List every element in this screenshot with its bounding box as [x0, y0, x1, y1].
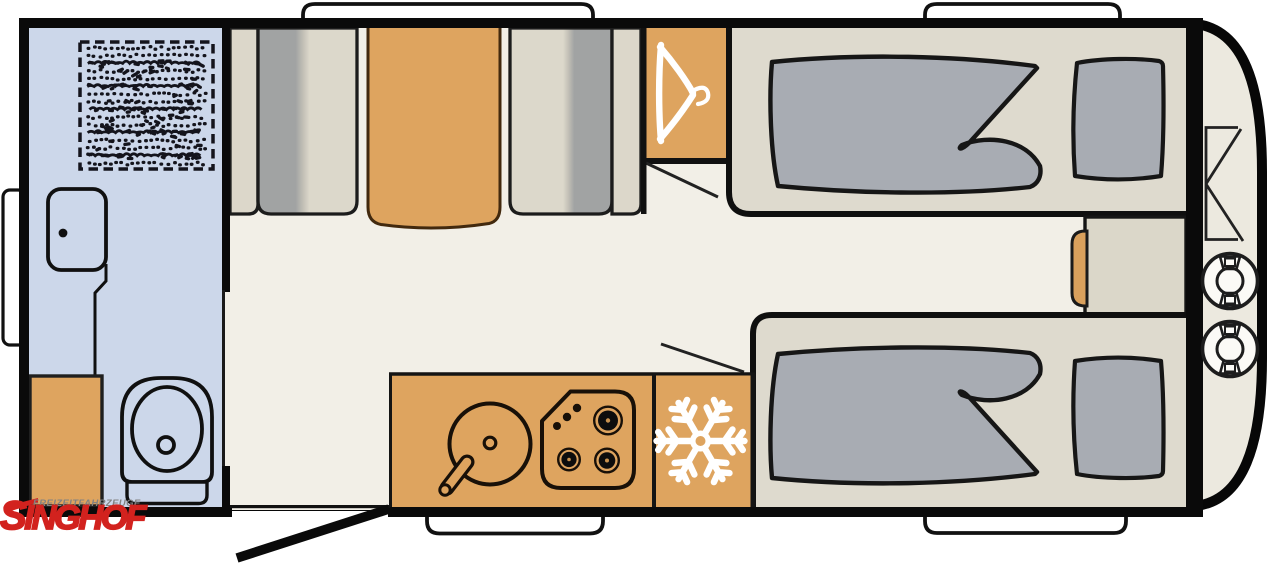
- svg-text:SINGHOF: SINGHOF: [0, 494, 147, 538]
